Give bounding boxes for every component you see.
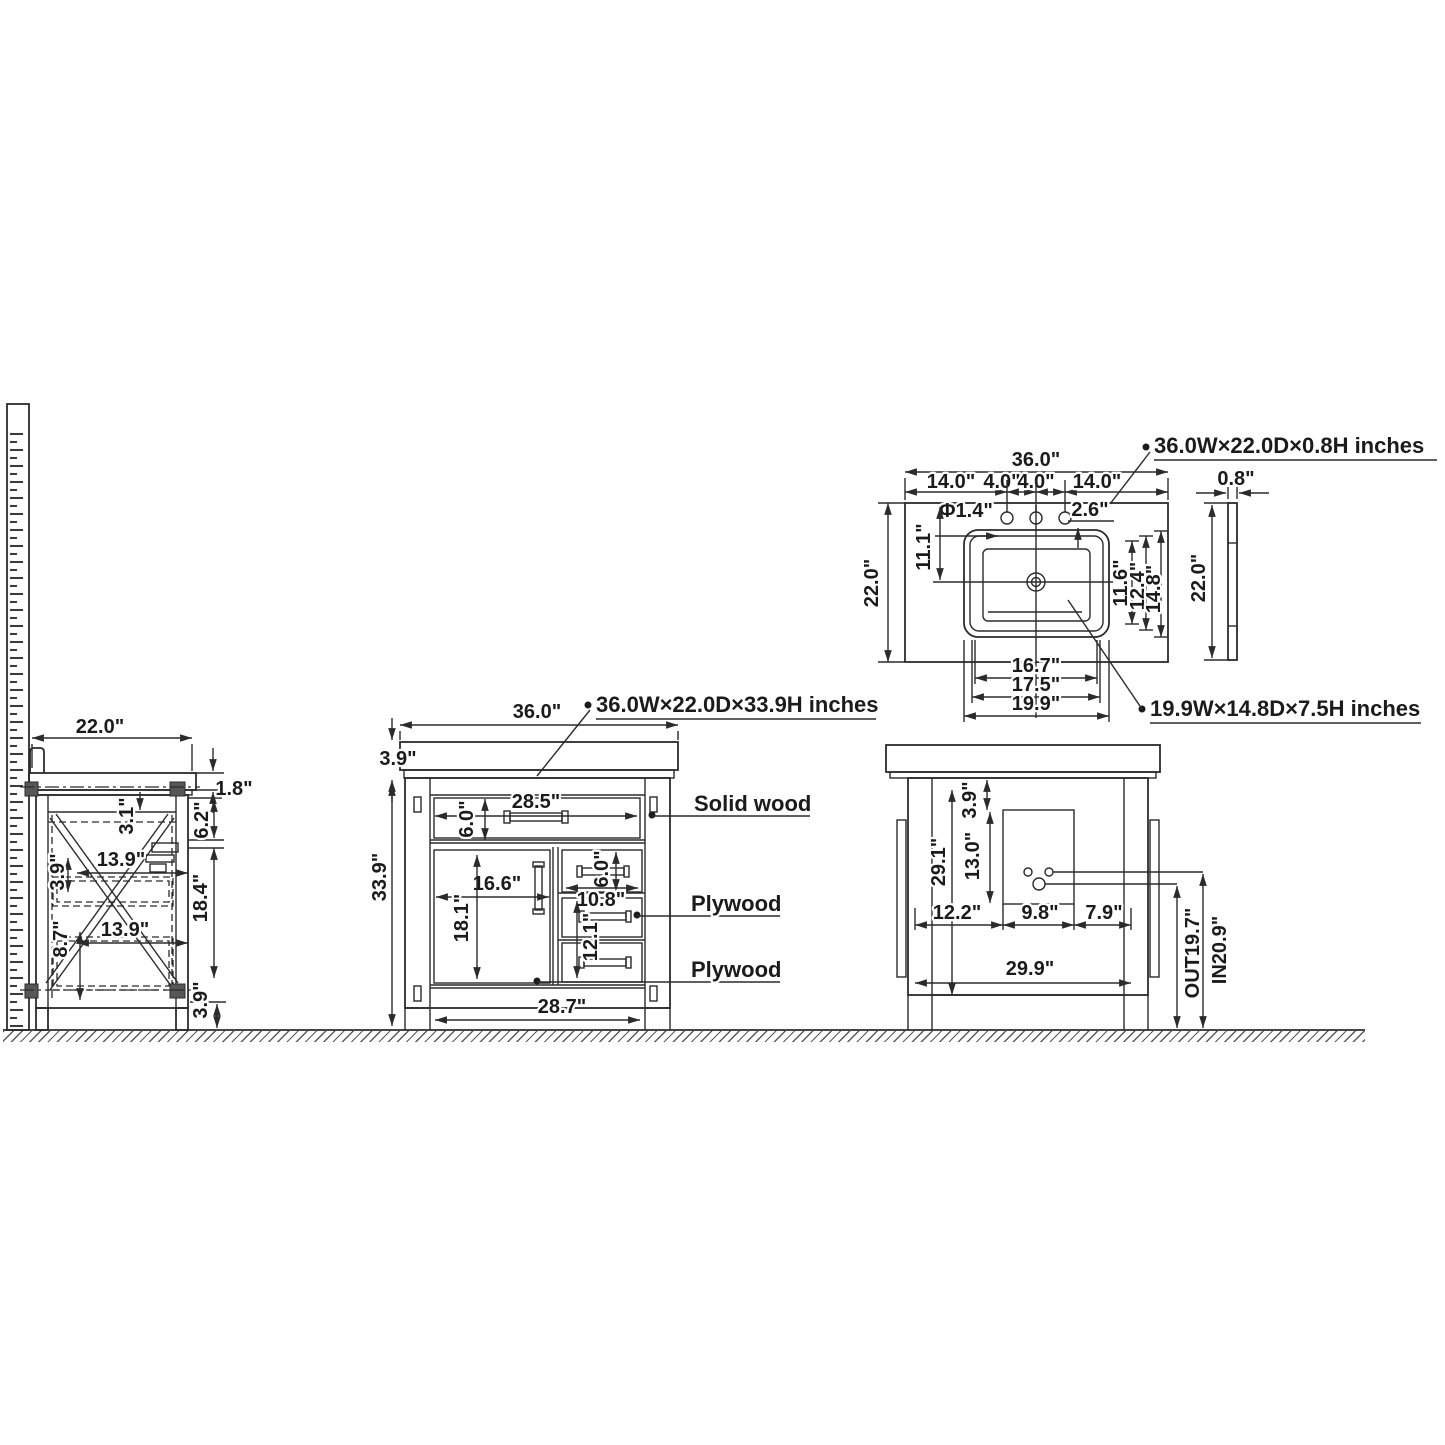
front-counter-height-label: 3.9" (379, 748, 416, 770)
back-outlet-height-label: OUT19.7" (1182, 908, 1204, 999)
side-slide-top-label: 13.9" (97, 849, 145, 871)
back-inlet-height-label: IN20.9" (1209, 916, 1231, 984)
top-left-span-label: 14.0" (927, 471, 975, 493)
back-base-width-label: 29.9" (1006, 958, 1054, 980)
back-countertop (886, 745, 1160, 772)
side-top-offset-label: 3.1" (116, 797, 138, 834)
front-width-label: 36.0" (513, 701, 561, 723)
front-right-drawer-width-label: 10.8" (577, 889, 625, 911)
front-height-label: 33.9" (369, 853, 391, 901)
vanity-size-annotation: 36.0W×22.0D×33.9H inches (596, 692, 879, 717)
back-supply-hole-right (1045, 868, 1053, 876)
countertop-size-bullet (1143, 444, 1150, 451)
front-top-drawer-width-label: 28.5" (512, 791, 560, 813)
back-right-side-panel (1150, 820, 1159, 977)
top-width-label: 36.0" (1012, 449, 1060, 471)
side-rail-gap-label: 6.2" (191, 801, 213, 838)
vanity-dimension-drawing: 22.0" (0, 0, 1445, 1445)
top-right-span-label: 14.0" (1073, 471, 1121, 493)
front-door-height-label: 18.1" (451, 894, 473, 942)
back-cutout-height-label: 13.0" (962, 832, 984, 880)
vanity-size-bullet (585, 702, 592, 709)
side-back-leg (36, 1008, 48, 1030)
top-view: 36.0" 14.0" 4.0" 4.0" 14.0" 22.0" Φ1.4" (861, 433, 1437, 723)
faucet-hole-left (1001, 512, 1013, 524)
side-cleat-bottom-front (170, 984, 185, 998)
ground-hatch (3, 1031, 1365, 1042)
back-right-offset-label: 7.9" (1085, 902, 1122, 924)
back-interior-height-label: 29.1" (928, 838, 950, 886)
top-depth-label: 22.0" (861, 559, 883, 607)
drawing-canvas: 22.0" (0, 0, 1445, 1445)
front-top-drawer-handle (510, 813, 562, 821)
front-door-handle (535, 866, 542, 910)
plywood-2-label: Plywood (691, 957, 781, 982)
back-drain-hole (1033, 878, 1045, 890)
side-cleat-top-front (170, 782, 185, 796)
side-drawer-zone-label: 18.4" (190, 874, 212, 922)
side-slide-bottom-label: 13.9" (101, 919, 149, 941)
side-bottom-offset-label: 8.7" (50, 920, 72, 957)
countertop-size-annotation: 36.0W×22.0D×0.8H inches (1154, 433, 1424, 458)
plywood-2-dot (534, 978, 541, 985)
profile-depth-label: 22.0" (1188, 554, 1210, 602)
profile-slab (1228, 503, 1237, 660)
hole-edge-gap-label: 2.6" (1071, 499, 1108, 521)
front-view: 36.0" 36.0W×22.0D×33.9H inches 3.9" 33.9… (369, 692, 879, 1030)
solid-wood-label: Solid wood (694, 791, 811, 816)
front-base-width-label: 28.7" (538, 996, 586, 1018)
back-panel-top-offset-label: 3.9" (959, 781, 981, 818)
faucet-hole-right (1059, 512, 1071, 524)
back-left-offset-label: 12.2" (933, 902, 981, 924)
solid-wood-dot (649, 812, 656, 819)
side-gap-label: 3.9" (47, 853, 69, 890)
top-hole-span-1-label: 4.0" (983, 471, 1020, 493)
side-counter-thickness-label: 1.8" (215, 778, 252, 800)
front-countertop (400, 742, 678, 770)
side-cleat-top-back (25, 782, 38, 796)
back-supply-hole-left (1024, 868, 1032, 876)
ruler-ticks-short (10, 441, 17, 1027)
side-cleat-bottom-back (25, 984, 38, 998)
side-view: 22.0" (20, 716, 253, 1030)
back-view: 29.1" 3.9" 13.0" 12.2" 9.8" 7.9" 29.9" O… (886, 745, 1231, 1030)
profile-thickness-label: 0.8" (1217, 468, 1254, 490)
side-width-label: 22.0" (76, 716, 124, 738)
sink-size-leader (1068, 600, 1142, 709)
back-left-side-panel (897, 820, 906, 977)
plywood-1-dot (634, 912, 641, 919)
front-door-width-label: 16.6" (473, 873, 521, 895)
hole-diameter-label: Φ1.4" (939, 500, 993, 522)
sink-outer-depth-label: 14.8" (1143, 565, 1165, 613)
side-drawer-slide-hardware (146, 843, 178, 872)
side-leg-height-label: 3.9" (190, 981, 212, 1018)
sink-outer-width-label: 19.9" (1012, 693, 1060, 715)
front-top-drawer-height-label: 6.0" (456, 800, 478, 837)
front-right-drawer-3 (562, 943, 642, 982)
front-right-drawer-height-label: 6.0" (591, 850, 613, 887)
front-to-center-label: 11.1" (913, 523, 935, 570)
sink-size-annotation: 19.9W×14.8D×7.5H inches (1150, 696, 1420, 721)
front-lower-drawer-height-label: 12.1" (580, 913, 602, 961)
back-cutout-width-label: 9.8" (1021, 902, 1058, 924)
side-front-leg (176, 1008, 188, 1030)
plywood-1-label: Plywood (691, 891, 781, 916)
countertop-profile-view: 0.8" 22.0" (1188, 468, 1269, 660)
